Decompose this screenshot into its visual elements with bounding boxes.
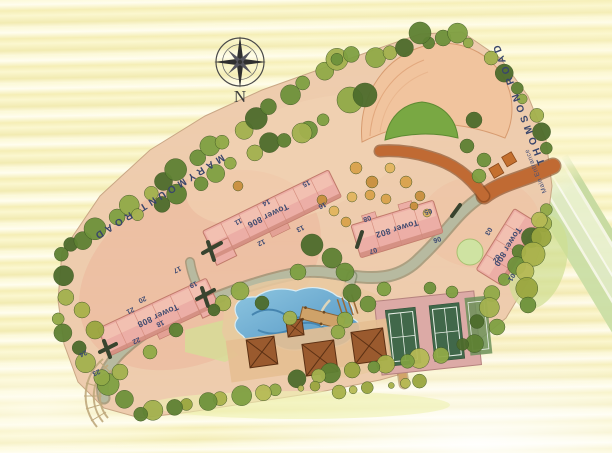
site-plan-artwork	[0, 0, 612, 453]
compass-north-label: N	[234, 87, 246, 107]
compass-rose-icon	[214, 36, 266, 88]
site-plan: MARYMOUNT ROAD THOMSON ROAD Main Entranc…	[0, 0, 612, 453]
